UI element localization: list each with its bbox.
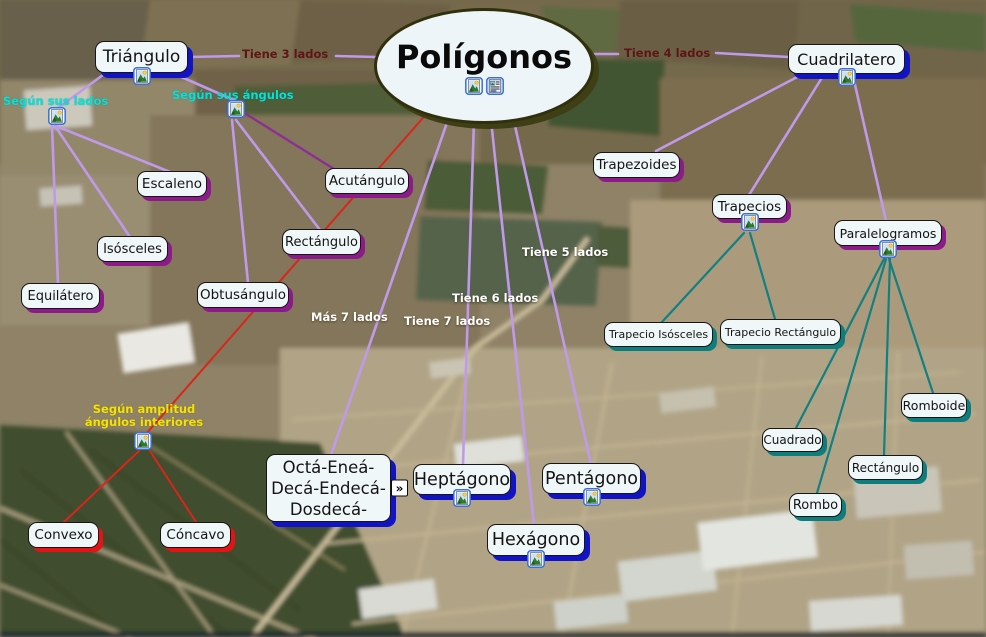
node-obtusangulo[interactable]: Obtusángulo (197, 282, 289, 308)
node-rectangulo-cuadrilatero[interactable]: Rectángulo (848, 455, 923, 480)
central-node-poligonos[interactable]: Polígonos (374, 8, 594, 124)
node-label: Heptágono (414, 470, 510, 490)
image-icon[interactable] (133, 67, 151, 85)
concept-map: Tiene 3 lados Tiene 4 lados Tiene 5 lado… (0, 0, 986, 637)
node-cuadrilatero[interactable]: Cuadrilatero (788, 44, 905, 74)
image-icon[interactable] (48, 107, 66, 125)
node-cuadrado[interactable]: Cuadrado (762, 428, 823, 452)
node-label: Cuadrado (763, 433, 821, 447)
node-romboide[interactable]: Romboide (901, 393, 967, 418)
node-label: Equilátero (27, 289, 93, 304)
node-acutangulo[interactable]: Acutángulo (325, 168, 409, 194)
node-label: Convexo (34, 527, 92, 543)
node-octa-enea-deca-endeca-dosdeca[interactable]: Octá-Eneá- Decá-Endecá- Dosdecá- » (266, 454, 391, 522)
node-concavo[interactable]: Cóncavo (160, 522, 231, 548)
node-label: Trapecio Rectángulo (725, 326, 836, 339)
image-icon[interactable] (741, 213, 759, 231)
image-icon[interactable] (465, 77, 483, 95)
node-label-line: Octá-Eneá- (283, 457, 375, 478)
image-icon[interactable] (134, 432, 152, 450)
node-label: Romboide (903, 398, 966, 413)
node-trapecio-rectangulo[interactable]: Trapecio Rectángulo (720, 319, 841, 345)
node-escaleno[interactable]: Escaleno (137, 171, 207, 197)
edge-label-tiene-5-lados: Tiene 5 lados (522, 245, 608, 259)
image-icon[interactable] (527, 550, 545, 568)
image-icon[interactable] (838, 68, 856, 86)
node-rectangulo-triangulo[interactable]: Rectángulo (282, 229, 361, 255)
node-label: Rombo (793, 498, 838, 513)
node-label: Rectángulo (285, 235, 358, 250)
node-pentagono[interactable]: Pentágono (542, 463, 641, 494)
image-icon[interactable] (453, 489, 471, 507)
node-label-line: Decá-Endecá- (271, 478, 386, 499)
node-trapecios[interactable]: Trapecios (712, 194, 787, 219)
node-label: Paralelogramos (840, 226, 937, 241)
edge-label-tiene-7-lados: Tiene 7 lados (404, 314, 490, 328)
node-label: Isósceles (103, 242, 162, 257)
node-label: Trapecio Isósceles (609, 328, 708, 341)
node-triangulo[interactable]: Triángulo (95, 41, 188, 73)
node-rombo[interactable]: Rombo (789, 493, 842, 517)
node-label-line: Dosdecá- (290, 499, 367, 520)
node-label: Octá-Eneá- Decá-Endecá- Dosdecá- (271, 457, 386, 520)
node-label: Hexágono (492, 530, 580, 550)
edge-label-tiene-3-lados: Tiene 3 lados (242, 47, 328, 61)
node-hexagono[interactable]: Hexágono (487, 524, 585, 556)
node-heptagono[interactable]: Heptágono (413, 464, 511, 495)
node-equilatero[interactable]: Equilátero (21, 283, 100, 309)
edge-label-mas-7-lados: Más 7 lados (311, 310, 388, 324)
category-label-segun-amplitud: Según amplitud ángulos interiores (60, 403, 228, 429)
node-isosceles[interactable]: Isósceles (97, 236, 168, 262)
edge-label-tiene-6-lados: Tiene 6 lados (452, 291, 538, 305)
node-label: Rectángulo (852, 461, 919, 475)
node-label: Cuadrilatero (797, 50, 896, 69)
node-label: Pentágono (545, 469, 638, 489)
collapse-chevron-icon[interactable]: » (391, 480, 408, 497)
node-trapezoides[interactable]: Trapezoides (593, 152, 680, 178)
image-icon[interactable] (583, 488, 601, 506)
central-node-icons (465, 77, 504, 95)
node-label: Triángulo (103, 47, 180, 67)
edge-label-tiene-4-lados: Tiene 4 lados (624, 46, 710, 60)
note-icon[interactable] (486, 77, 504, 95)
node-paralelogramos[interactable]: Paralelogramos (834, 220, 942, 246)
node-label: Obtusángulo (200, 287, 286, 303)
central-node-label: Polígonos (396, 38, 572, 76)
node-convexo[interactable]: Convexo (28, 522, 99, 548)
node-trapecio-isosceles[interactable]: Trapecio Isósceles (604, 322, 713, 347)
image-icon[interactable] (879, 240, 897, 258)
category-label-line: ángulos interiores (60, 416, 228, 429)
node-label: Acutángulo (329, 173, 405, 189)
node-label: Escaleno (142, 176, 202, 192)
image-icon[interactable] (227, 100, 245, 118)
node-label: Trapezoides (597, 157, 677, 173)
node-label: Cóncavo (166, 527, 224, 543)
category-label-segun-sus-lados: Según sus lados (3, 94, 108, 108)
